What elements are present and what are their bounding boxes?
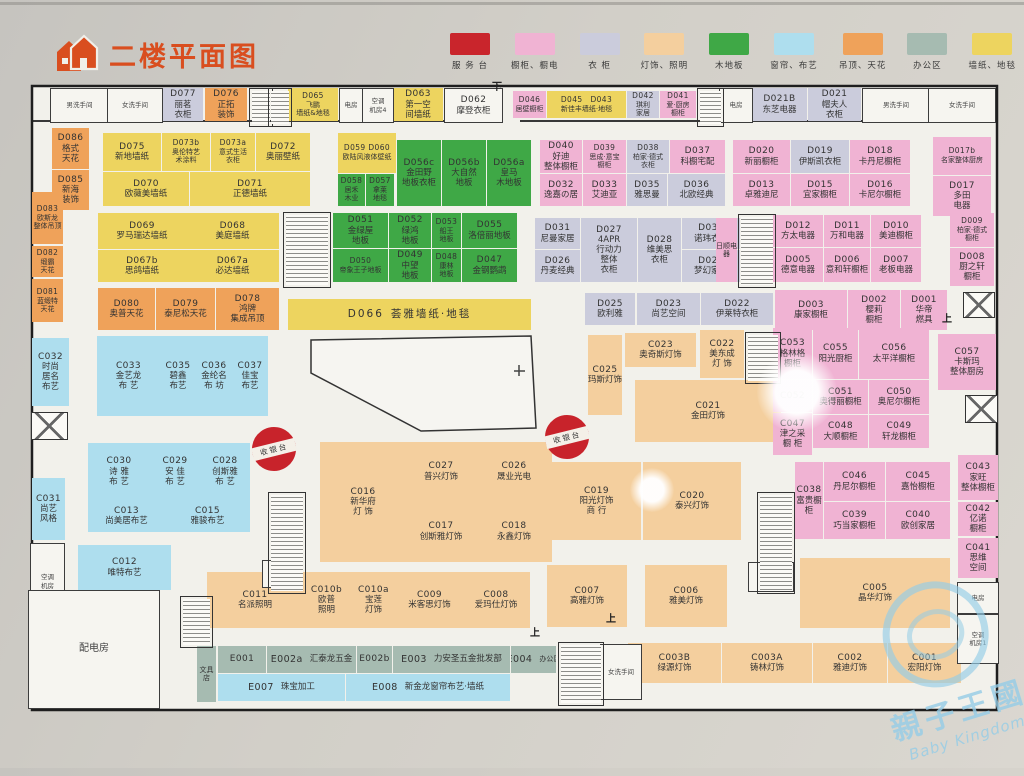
- store-block-D012: D012方太电器: [773, 215, 823, 247]
- store-block-C045: C045嘉怡橱柜: [886, 462, 950, 501]
- store-block-D018: D018卡丹尼橱柜: [850, 140, 910, 173]
- floor-plan: 二楼平面图 服 务 台橱柜、橱电衣 柜灯饰、照明木地板窗帘、布艺吊顶、天花办公区…: [0, 0, 1024, 768]
- store-block-C046: C046丹尼尔橱柜: [824, 462, 885, 501]
- store-block-D083: D083欧斯龙 整体吊顶: [32, 192, 63, 244]
- store-block-D050: D050帝象王子地板: [333, 249, 388, 282]
- stairs-icon: [697, 88, 724, 127]
- legend-label: 衣 柜: [588, 59, 611, 71]
- store-block-C037: C037佳宝 布艺: [232, 336, 268, 416]
- store-block-D015: D015宜家橱柜: [791, 174, 849, 206]
- store-block-C049: C049轩龙橱柜: [869, 415, 929, 448]
- store-block-C022: C022美东成 灯 饰: [700, 330, 744, 378]
- stairs-icon: [558, 642, 604, 706]
- store-block-D057: D057拿莱 地毯: [366, 174, 394, 206]
- store-block-D047: D047金钢鹦鹉: [462, 249, 517, 282]
- legend-label: 橱柜、橱电: [511, 59, 559, 71]
- store-block-D008: D008厨之轩 橱柜: [950, 248, 994, 286]
- store-block-C036: C036金纶名 布 坊: [196, 336, 232, 416]
- title-text: 二楼平面图: [109, 35, 259, 74]
- store-block-C029: C029安 佳 布 艺: [150, 443, 200, 500]
- store-block-D051: D051金绿屋 地板: [333, 213, 388, 248]
- stairs-icon: [757, 492, 795, 594]
- legend-item: 橱柜、橱电: [511, 33, 559, 71]
- legend-item: 窗帘、布艺: [770, 33, 818, 71]
- facility-room: 女洗手间: [107, 88, 163, 123]
- stair-direction-label: 上: [606, 610, 616, 625]
- legend-label: 窗帘、布艺: [770, 59, 818, 71]
- store-block-D010: D010美迪橱柜: [871, 215, 921, 247]
- store-block-C002: C002雅迪灯饰: [813, 643, 887, 683]
- facility-room: 男洗手间: [50, 88, 109, 123]
- store-block-C019: C019阳光灯饰 商 行: [552, 462, 641, 540]
- store-block-D027: D0274APR 行动力 整体 衣柜: [581, 218, 637, 282]
- store-block-C039: C039巧当家橱柜: [824, 502, 885, 539]
- glare-spot: [630, 468, 674, 512]
- store-block-D037: D037科橱宅配: [670, 140, 725, 173]
- store-block-C027: C027普兴灯饰: [406, 442, 476, 501]
- elevator-icon: [963, 292, 995, 318]
- store-block-D016: D016卡尼尔橱柜: [850, 174, 910, 206]
- store-block-D048: D048康林 地板: [432, 249, 461, 282]
- facility-room: 男洗手间: [862, 88, 930, 123]
- legend-item: 木地板: [709, 33, 749, 71]
- legend-swatch-cab: [515, 33, 555, 55]
- store-block-E007: E007珠宝加工: [218, 674, 345, 701]
- store-block-D023: D023尚艺空间: [637, 293, 700, 325]
- store-block-C016: C016新华府 灯 饰: [320, 442, 406, 562]
- store-block-D068: D068美庭墙纸: [186, 213, 279, 249]
- store-block-C013: C013尚美居布艺: [88, 500, 165, 532]
- store-block-D041: D041爱·厨房 橱柜: [660, 91, 696, 118]
- store-block-D069: D069罗马瑞达墙纸: [98, 213, 186, 249]
- store-block-E008: E008新金龙窗帘布艺·墙纸: [346, 674, 510, 701]
- legend-item: 墙纸、地毯: [968, 33, 1016, 71]
- store-block-D033: D033艾迪亚: [583, 174, 626, 206]
- facility-room: 空调 机房1: [957, 614, 999, 664]
- store-block-D035: D035雅思曼: [627, 174, 667, 206]
- facility-room: 女洗手间: [928, 88, 996, 123]
- store-block-C012: C012唯特布艺: [78, 545, 171, 590]
- stair-direction-label: 上: [942, 310, 952, 325]
- legend-swatch-wood: [709, 33, 749, 55]
- store-block-C028: C028创斯雅 布 艺: [200, 443, 250, 500]
- store-block-D056b: D056b大自然 地板: [442, 140, 486, 206]
- store-block-C040: C040欧创家居: [886, 502, 950, 539]
- store-block-C030: C030诗 雅 布 艺: [88, 443, 150, 500]
- store-block-C010b: C010b欧普 照明: [303, 572, 350, 628]
- legend-swatch-fabric: [774, 33, 814, 55]
- legend-label: 服 务 台: [452, 59, 488, 71]
- glare-spot: [757, 352, 837, 432]
- stairs-icon: [738, 214, 776, 288]
- store-block-D038: D038柏家·德式 衣柜: [627, 140, 669, 173]
- area-block: 日顺电器: [716, 218, 737, 282]
- facility-room: 电房: [339, 88, 363, 123]
- legend-swatch-light: [644, 33, 684, 55]
- store-block-C008: C008爱玛仕灯饰: [462, 572, 530, 628]
- store-block-D073a: D073a意式生活 衣柜: [211, 133, 255, 171]
- store-block-D045: D045 D043新佳丰墙纸·地毯: [547, 91, 626, 118]
- legend-label: 木地板: [715, 59, 744, 71]
- store-block-D078: D078鸿牌 集成吊顶: [216, 288, 279, 330]
- store-block-D002: D002樱莉 橱柜: [848, 290, 900, 330]
- store-block-D031: D031尼曼家居: [535, 218, 580, 249]
- elevator-icon: [965, 395, 998, 423]
- store-block-D049: D049中望 地板: [389, 249, 431, 282]
- legend-label: 吊顶、天花: [839, 59, 887, 71]
- store-block-D067a: D067a必达墙纸: [186, 250, 279, 282]
- store-block-D080: D080奥普天花: [98, 288, 155, 330]
- store-block-D073b: D073b奥伦特艺 术涂料: [162, 133, 210, 171]
- store-block-D076: D076正拓 装饰: [205, 88, 247, 121]
- legend-item: 办公区: [907, 33, 947, 71]
- store-block-E003: E003力安圣五金批发部: [393, 646, 510, 673]
- store-block-D039: D039思成·意宝 橱柜: [583, 140, 626, 173]
- legend-item: 衣 柜: [580, 33, 620, 71]
- legend-item: 灯饰、照明: [641, 33, 689, 71]
- legend-item: 服 务 台: [450, 33, 490, 71]
- legend-swatch-office: [907, 33, 947, 55]
- legend-swatch-svc: [450, 33, 490, 55]
- store-block-C026: C026晟业光电: [476, 442, 552, 501]
- store-block-D079: D079泰尼松天花: [156, 288, 215, 330]
- store-block-D071: D071正德墙纸: [190, 172, 310, 206]
- stair-direction-label: 上: [530, 624, 540, 639]
- store-block-C018: C018永鑫灯饰: [476, 501, 552, 562]
- store-block-D081: D081蓝缎特 天花: [32, 279, 63, 322]
- facility-room: 电房: [719, 88, 753, 123]
- legend-label: 办公区: [913, 59, 942, 71]
- store-block-D046: D046居壁橱柜: [513, 91, 546, 118]
- store-block-E002b: E002b: [357, 646, 392, 673]
- store-block-C025: C025玛斯灯饰: [588, 335, 622, 415]
- store-block-D032: D032逸嘉の居: [540, 174, 582, 206]
- store-block-D058: D058居禾 木业: [338, 174, 365, 206]
- facility-room: 女洗手间: [600, 644, 642, 700]
- store-block-D065: D065飞鹏 墙纸&地毯: [288, 88, 338, 121]
- store-block-C015: C015雅骏布艺: [165, 500, 250, 532]
- store-block-C010a: C010a宝莲 灯饰: [350, 572, 397, 628]
- store-block-D086: D086格式 天花: [52, 128, 89, 169]
- store-block-D056a: D056a皇马 木地板: [487, 140, 531, 206]
- legend-label: 墙纸、地毯: [968, 59, 1016, 71]
- store-block-C035: C035碧鑫 布艺: [160, 336, 196, 416]
- store-block-D028: D028维美思 衣柜: [638, 218, 681, 282]
- store-block-D056c: D056c金田野 地板衣柜: [397, 140, 441, 206]
- store-block-D053: D053船王 地板: [432, 213, 461, 248]
- store-block-D075: D075新地墙纸: [103, 133, 161, 171]
- store-block-C023: C023奥奇斯灯饰: [625, 333, 696, 367]
- store-block-E001: E001: [218, 646, 266, 673]
- store-block-C056: C056太平洋橱柜: [859, 328, 929, 379]
- store-block-D082: D082缎霸 天花: [32, 246, 63, 277]
- store-block-C057: C057卡斯玛 整体厨房: [938, 334, 996, 390]
- area-block: 文具店: [197, 646, 216, 702]
- legend-label: 灯饰、照明: [641, 59, 689, 71]
- store-block-D003: D003康家橱柜: [775, 290, 847, 330]
- store-block-D077: D077丽茗 衣柜: [163, 88, 203, 121]
- store-block-C017: C017创斯雅灯饰: [406, 501, 476, 562]
- store-block-D021: D021帽夫人 衣柜: [808, 88, 861, 121]
- legend-swatch-ward: [580, 33, 620, 55]
- store-block-C033: C033金艺龙 布 艺: [97, 336, 160, 416]
- stairs-icon: [268, 88, 292, 127]
- store-block-D017b: D017b名家整体厨房: [933, 137, 991, 175]
- stair-direction-label: 下: [492, 78, 502, 93]
- store-block-D052: D052绿鸿 地板: [389, 213, 431, 248]
- store-block-D020: D020新丽橱柜: [733, 140, 790, 173]
- store-block-E002a: E002a汇泰龙五金: [267, 646, 356, 673]
- store-block-C043: C043家旺 整体橱柜: [958, 455, 998, 500]
- store-block-C038: C038富贵橱柜: [795, 462, 823, 539]
- store-block-D055: D055洛倍丽地板: [462, 213, 517, 248]
- store-block-C006: C006雅美灯饰: [645, 565, 727, 627]
- facility-room: 配电房: [28, 590, 160, 709]
- store-block-D026: D026丹麦经典: [535, 250, 580, 282]
- store-block-D021B: D021B东芝电器: [752, 88, 807, 121]
- elevator-icon: [31, 412, 68, 440]
- legend-swatch-wall: [972, 33, 1012, 55]
- store-block-D059: D059 D060欧陆风液体壁纸: [338, 133, 396, 173]
- store-block-C005: C005晶华灯饰: [800, 558, 950, 628]
- store-block-D005: D005德意电器: [773, 248, 823, 282]
- store-block-C009: C009米客思灯饰: [397, 572, 462, 628]
- store-block-D072: D072奥丽壁纸: [256, 133, 310, 171]
- store-block-D036: D036北欧经典: [668, 174, 725, 206]
- store-block-E004: E004办公区: [511, 646, 556, 673]
- legend: 服 务 台橱柜、橱电衣 柜灯饰、照明木地板窗帘、布艺吊顶、天花办公区墙纸、地毯: [450, 33, 1016, 71]
- store-block-D062: D062摩登衣柜: [444, 88, 503, 123]
- store-block-D007: D007老板电器: [871, 248, 921, 282]
- store-block-D040: D040好迪 整体橱柜: [540, 140, 582, 173]
- store-block-D013: D013卓雅迪尼: [733, 174, 790, 206]
- stairs-icon: [268, 492, 306, 594]
- store-block-D001: D001华帝 燃具: [901, 290, 947, 330]
- store-block-D042: D042琪利 家居: [627, 91, 659, 118]
- store-block-D066: D066荟雅墙纸·地毯: [288, 299, 531, 330]
- store-block-D011: D011万和电器: [824, 215, 870, 247]
- page-title: 二楼平面图: [55, 33, 259, 75]
- legend-swatch-ceil: [843, 33, 883, 55]
- house-icon: [55, 33, 101, 75]
- store-block-D022: D022伊莱特衣柜: [701, 293, 773, 325]
- store-block-C050: C050奥尼尔橱柜: [869, 380, 929, 414]
- stairs-icon: [180, 596, 213, 648]
- store-block-C003A: C003A铸林灯饰: [722, 643, 812, 683]
- facility-room: 空调 机房4: [362, 88, 394, 123]
- store-block-D009: D009柏家·德式 橱柜: [950, 213, 994, 247]
- store-block-D063: D063第一空 间墙纸: [393, 88, 443, 121]
- store-block-C032: C032时尚 居名 布艺: [32, 338, 69, 406]
- store-block-D070: D070欧薇美墙纸: [103, 172, 189, 206]
- store-block-D025: D025欧利雅: [585, 293, 635, 325]
- store-block-D017: D017多田 电器: [933, 176, 991, 216]
- store-block-C031: C031尚艺 风格: [32, 478, 65, 540]
- store-block-D067b: D067b思鸽墙纸: [98, 250, 186, 282]
- store-block-C001: C001宏阳灯饰: [888, 643, 961, 683]
- store-block-C042: C042亿诺 橱柜: [958, 502, 998, 536]
- legend-item: 吊顶、天花: [839, 33, 887, 71]
- store-block-D006: D006意和轩橱柜: [824, 248, 870, 282]
- store-block-C041: C041思维 空间: [958, 538, 998, 578]
- facility-room: 电房: [957, 582, 999, 614]
- stairs-icon: [283, 212, 331, 288]
- store-block-D019: D019伊斯凯衣柜: [791, 140, 849, 173]
